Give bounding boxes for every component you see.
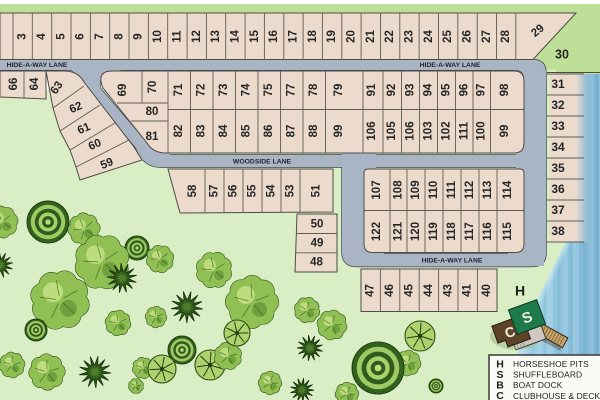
svg-text:54: 54 bbox=[266, 184, 278, 197]
svg-text:26: 26 bbox=[462, 30, 474, 43]
svg-text:15: 15 bbox=[249, 30, 261, 43]
svg-text:H: H bbox=[515, 283, 525, 299]
svg-text:106: 106 bbox=[366, 121, 378, 140]
svg-text:69: 69 bbox=[117, 84, 129, 97]
svg-text:11: 11 bbox=[171, 30, 183, 43]
svg-text:20: 20 bbox=[346, 30, 358, 43]
svg-text:86: 86 bbox=[263, 125, 275, 138]
svg-text:7: 7 bbox=[94, 33, 106, 39]
svg-text:121: 121 bbox=[393, 221, 405, 241]
svg-text:49: 49 bbox=[311, 238, 324, 250]
svg-text:103: 103 bbox=[423, 121, 435, 140]
svg-text:17: 17 bbox=[288, 30, 300, 43]
svg-text:9: 9 bbox=[133, 33, 145, 39]
svg-text:HORSESHOE PITS: HORSESHOE PITS bbox=[513, 359, 589, 369]
svg-text:32: 32 bbox=[551, 98, 565, 112]
svg-text:112: 112 bbox=[464, 181, 476, 200]
svg-text:64: 64 bbox=[29, 77, 41, 90]
svg-text:10: 10 bbox=[152, 30, 164, 43]
svg-text:57: 57 bbox=[209, 185, 221, 198]
svg-text:74: 74 bbox=[241, 83, 253, 96]
svg-text:3: 3 bbox=[17, 33, 29, 39]
svg-text:88: 88 bbox=[308, 124, 320, 137]
svg-text:33: 33 bbox=[551, 119, 565, 133]
svg-text:35: 35 bbox=[551, 161, 565, 175]
svg-text:C: C bbox=[496, 390, 504, 400]
svg-text:30: 30 bbox=[555, 47, 569, 61]
svg-text:110: 110 bbox=[428, 181, 440, 200]
svg-text:75: 75 bbox=[263, 83, 275, 96]
svg-text:79: 79 bbox=[333, 84, 345, 97]
svg-text:48: 48 bbox=[310, 257, 323, 269]
svg-text:31: 31 bbox=[551, 77, 565, 91]
svg-text:27: 27 bbox=[481, 30, 493, 43]
svg-text:55: 55 bbox=[247, 184, 259, 197]
svg-text:82: 82 bbox=[173, 125, 185, 138]
svg-text:91: 91 bbox=[366, 83, 378, 96]
svg-text:38: 38 bbox=[551, 224, 565, 238]
svg-text:95: 95 bbox=[441, 83, 453, 96]
svg-text:BOAT DOCK: BOAT DOCK bbox=[513, 380, 563, 390]
svg-text:111: 111 bbox=[446, 180, 458, 199]
svg-text:12: 12 bbox=[191, 30, 203, 43]
svg-text:13: 13 bbox=[210, 30, 222, 43]
svg-text:SHUFFLEBOARD: SHUFFLEBOARD bbox=[513, 370, 582, 380]
svg-text:16: 16 bbox=[268, 30, 280, 43]
svg-text:36: 36 bbox=[551, 182, 565, 196]
svg-text:22: 22 bbox=[384, 30, 396, 43]
svg-text:28: 28 bbox=[500, 30, 512, 43]
svg-text:107: 107 bbox=[371, 180, 383, 199]
svg-text:47: 47 bbox=[365, 284, 377, 297]
svg-text:34: 34 bbox=[551, 140, 565, 154]
svg-text:46: 46 bbox=[384, 284, 396, 297]
svg-text:119: 119 bbox=[428, 222, 440, 241]
svg-text:117: 117 bbox=[464, 222, 476, 241]
svg-text:37: 37 bbox=[551, 203, 565, 217]
svg-text:44: 44 bbox=[423, 284, 435, 297]
svg-text:40: 40 bbox=[481, 284, 493, 297]
svg-text:73: 73 bbox=[218, 84, 230, 97]
svg-text:102: 102 bbox=[441, 121, 453, 140]
svg-text:18: 18 bbox=[307, 30, 319, 43]
svg-text:113: 113 bbox=[482, 181, 494, 200]
svg-text:80: 80 bbox=[146, 106, 159, 118]
svg-text:66: 66 bbox=[8, 78, 20, 91]
svg-text:116: 116 bbox=[482, 222, 494, 241]
svg-text:100: 100 bbox=[476, 121, 488, 140]
svg-text:108: 108 bbox=[393, 180, 405, 200]
svg-text:71: 71 bbox=[173, 83, 185, 96]
svg-text:98: 98 bbox=[499, 83, 511, 96]
svg-text:114: 114 bbox=[502, 180, 514, 199]
svg-text:77: 77 bbox=[286, 84, 298, 97]
svg-text:14: 14 bbox=[229, 30, 241, 43]
svg-text:111: 111 bbox=[459, 121, 471, 140]
svg-text:51: 51 bbox=[311, 184, 323, 197]
svg-text:92: 92 bbox=[386, 84, 398, 97]
svg-text:83: 83 bbox=[196, 125, 208, 138]
svg-text:97: 97 bbox=[476, 84, 488, 97]
svg-text:122: 122 bbox=[371, 222, 383, 241]
svg-text:8: 8 bbox=[113, 33, 125, 40]
svg-text:99: 99 bbox=[499, 125, 511, 138]
svg-text:HIDE-A-WAY LANE: HIDE-A-WAY LANE bbox=[7, 62, 68, 69]
svg-text:HIDE-A-WAY LANE: HIDE-A-WAY LANE bbox=[420, 62, 481, 69]
svg-text:106: 106 bbox=[405, 121, 417, 140]
svg-text:53: 53 bbox=[285, 185, 297, 198]
svg-text:84: 84 bbox=[218, 124, 230, 137]
svg-text:81: 81 bbox=[146, 131, 159, 143]
svg-text:109: 109 bbox=[410, 180, 422, 199]
svg-text:6: 6 bbox=[75, 33, 87, 39]
svg-text:78: 78 bbox=[308, 83, 320, 96]
svg-text:93: 93 bbox=[405, 84, 417, 97]
svg-text:45: 45 bbox=[404, 284, 416, 297]
svg-text:50: 50 bbox=[311, 219, 324, 231]
svg-text:24: 24 bbox=[423, 30, 435, 43]
svg-text:72: 72 bbox=[196, 84, 208, 97]
svg-text:99: 99 bbox=[333, 125, 345, 138]
svg-text:5: 5 bbox=[55, 33, 67, 40]
svg-text:118: 118 bbox=[446, 222, 458, 241]
svg-text:96: 96 bbox=[459, 84, 471, 97]
svg-text:WOODSIDE LANE: WOODSIDE LANE bbox=[233, 158, 292, 165]
svg-text:41: 41 bbox=[462, 284, 474, 297]
svg-text:56: 56 bbox=[228, 185, 240, 198]
svg-text:19: 19 bbox=[326, 30, 338, 43]
svg-text:105: 105 bbox=[386, 121, 398, 141]
svg-text:25: 25 bbox=[442, 30, 454, 43]
svg-text:4: 4 bbox=[36, 33, 48, 40]
svg-text:HIDE-A-WAY LANE: HIDE-A-WAY LANE bbox=[422, 257, 483, 264]
svg-text:87: 87 bbox=[286, 125, 298, 138]
svg-text:70: 70 bbox=[147, 81, 159, 94]
svg-text:85: 85 bbox=[241, 124, 253, 137]
svg-text:115: 115 bbox=[502, 222, 514, 241]
svg-text:23: 23 bbox=[404, 30, 416, 43]
svg-text:58: 58 bbox=[187, 184, 199, 197]
svg-text:43: 43 bbox=[442, 284, 454, 297]
svg-text:94: 94 bbox=[423, 83, 435, 96]
svg-text:CLUBHOUSE & DECK: CLUBHOUSE & DECK bbox=[513, 391, 600, 400]
svg-text:120: 120 bbox=[410, 222, 422, 241]
svg-text:21: 21 bbox=[365, 30, 377, 43]
